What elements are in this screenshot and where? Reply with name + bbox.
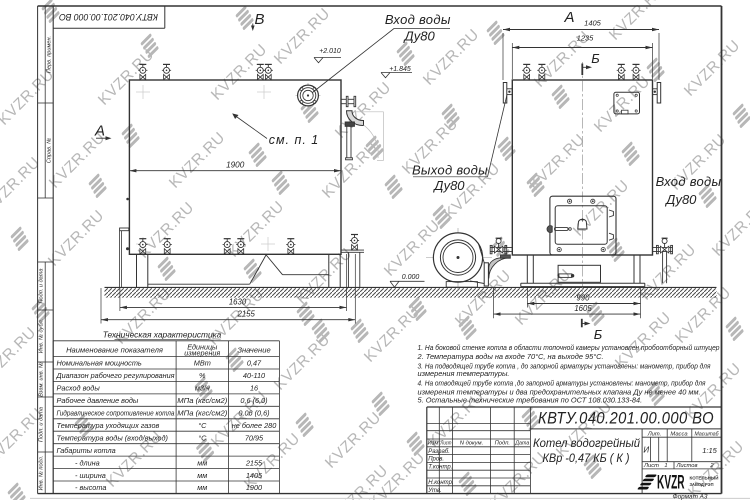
svg-text:Габариты котла: Габариты котла [57, 446, 116, 455]
svg-text:1. На боковой стенке котла в: 1. На боковой стенке котла в области топ… [418, 343, 720, 352]
svg-text:Лит.: Лит. [647, 431, 662, 437]
svg-text:Пров.: Пров. [428, 457, 444, 463]
svg-text:0,47: 0,47 [247, 359, 262, 368]
svg-text:Наименование показателя: Наименование показателя [66, 345, 163, 354]
svg-text:Листов: Листов [675, 463, 697, 469]
svg-text:990: 990 [576, 294, 590, 303]
svg-text:°С: °С [198, 421, 207, 430]
svg-text:Ду80: Ду80 [432, 178, 465, 193]
svg-text:Ду80: Ду80 [664, 192, 697, 207]
svg-text:°С: °С [198, 433, 207, 442]
svg-text:Температура воды (вход/выход): Температура воды (вход/выход) [57, 433, 168, 442]
svg-text:1630: 1630 [229, 297, 247, 306]
svg-text:Рабочее давление воды: Рабочее давление воды [57, 396, 139, 405]
svg-text:N докум.: N докум. [460, 441, 483, 447]
svg-text:Б: Б [591, 51, 600, 66]
svg-text:1405: 1405 [584, 19, 602, 28]
svg-text:KVZR: KVZR [657, 473, 685, 494]
svg-text:16: 16 [250, 384, 259, 393]
svg-text:1605: 1605 [574, 304, 592, 313]
svg-text:Изм: Изм [428, 441, 439, 447]
svg-text:Т.контр.: Т.контр. [428, 465, 452, 471]
svg-text:2155: 2155 [237, 310, 256, 319]
svg-text:Вход воды: Вход воды [385, 12, 451, 27]
svg-text:Масса: Масса [670, 431, 688, 437]
svg-text:Значение: Значение [237, 345, 270, 354]
svg-text:1:15: 1:15 [702, 446, 717, 455]
svg-text:- длина: - длина [75, 458, 100, 467]
svg-text:мм: мм [197, 458, 207, 467]
svg-text:Гидравлическое сопротивление к: Гидравлическое сопротивление котла [57, 409, 175, 418]
svg-text:- высота: - высота [75, 483, 106, 492]
svg-text:КВТУ.040.201.00.000 ВО: КВТУ.040.201.00.000 ВО [59, 12, 158, 22]
svg-text:МПа (кгс/см2): МПа (кгс/см2) [177, 396, 227, 405]
svg-text:м3/ч: м3/ч [195, 384, 210, 393]
svg-text:см. п. 1: см. п. 1 [269, 133, 320, 147]
svg-text:Разраб.: Разраб. [428, 449, 450, 455]
svg-text:мм: мм [197, 471, 207, 480]
svg-text:0,6 (6,0): 0,6 (6,0) [240, 396, 267, 405]
svg-text:2. Температура воды на входе: 2. Температура воды на входе 70°С, на вы… [417, 352, 604, 361]
svg-text:1: 1 [664, 463, 667, 469]
svg-text:Б: Б [594, 327, 603, 342]
svg-text:Номинальная мощность: Номинальная мощность [57, 359, 142, 368]
svg-text:Дата: Дата [514, 441, 530, 447]
svg-text:1900: 1900 [226, 161, 245, 170]
svg-text:2155: 2155 [245, 458, 263, 467]
svg-text:МПа (кгс/см2): МПа (кгс/см2) [177, 409, 227, 418]
svg-text:Инв. № подл.: Инв. № подл. [39, 456, 45, 491]
svg-text:ЗАВОД РЭП: ЗАВОД РЭП [690, 482, 714, 488]
svg-text:Вход воды: Вход воды [656, 174, 722, 189]
svg-text:Н.контр.: Н.контр. [428, 480, 453, 486]
svg-text:Утв.: Утв. [427, 488, 442, 494]
svg-text:Лист: Лист [440, 441, 452, 447]
svg-text:40-110: 40-110 [243, 371, 265, 380]
svg-text:Подп. и дата: Подп. и дата [39, 407, 45, 442]
svg-text:1235: 1235 [577, 34, 595, 43]
svg-text:А: А [563, 9, 574, 26]
svg-text:Котел водогрейный: Котел водогрейный [533, 436, 640, 450]
svg-text:+2.010: +2.010 [319, 48, 341, 55]
svg-text:Справ. №: Справ. № [46, 138, 52, 163]
svg-text:4. На отводящей трубе котла ,: 4. На отводящей трубе котла ,до запорной… [418, 379, 706, 388]
svg-text:Подп. и дата: Подп. и дата [39, 268, 45, 303]
svg-text:Техническая характеристика: Техническая характеристика [103, 330, 222, 340]
svg-text:КВр -0,47 КБ ( К ): КВр -0,47 КБ ( К ) [543, 451, 630, 465]
svg-text:Расход воды: Расход воды [57, 384, 101, 393]
svg-text:Температура уходящих газов: Температура уходящих газов [57, 421, 160, 430]
svg-text:КВТУ.040.201.00.000 ВО: КВТУ.040.201.00.000 ВО [538, 409, 714, 428]
svg-text:+1.845: +1.845 [389, 66, 411, 73]
svg-text:B: B [254, 11, 264, 28]
svg-text:Лист: Лист [643, 463, 659, 469]
svg-text:мм: мм [197, 483, 207, 492]
svg-text:1405: 1405 [246, 471, 263, 480]
svg-text:Формат А3: Формат А3 [673, 493, 708, 500]
svg-text:Перв. примен.: Перв. примен. [46, 36, 52, 73]
svg-text:не более 280: не более 280 [232, 421, 277, 430]
svg-text:- ширина: - ширина [75, 471, 106, 480]
svg-text:измерения температуры.: измерения температуры. [418, 369, 510, 378]
svg-text:1900: 1900 [246, 483, 262, 492]
svg-text:Подп.: Подп. [495, 441, 510, 447]
svg-text:измерения: измерения [184, 349, 220, 358]
svg-text:МВт: МВт [194, 359, 211, 368]
svg-text:И: И [643, 446, 649, 455]
svg-text:Масштаб: Масштаб [695, 431, 720, 437]
svg-text:Инв. № дубл.: Инв. № дубл. [39, 319, 45, 353]
svg-text:Ду80: Ду80 [402, 29, 435, 44]
svg-text:5. Остальные технические треб: 5. Остальные технические требования по О… [418, 395, 643, 404]
svg-text:0.000: 0.000 [402, 274, 420, 281]
svg-text:Взам. инв. №: Взам. инв. № [39, 362, 45, 397]
svg-text:%: % [199, 371, 206, 380]
svg-text:Выход воды: Выход воды [412, 163, 488, 178]
svg-text:0,06 (0,6): 0,06 (0,6) [238, 409, 269, 418]
svg-text:Диапазон рабочего регулировани: Диапазон рабочего регулирования [56, 371, 175, 380]
svg-text:A: A [94, 123, 105, 140]
svg-text:70/95: 70/95 [245, 433, 264, 442]
